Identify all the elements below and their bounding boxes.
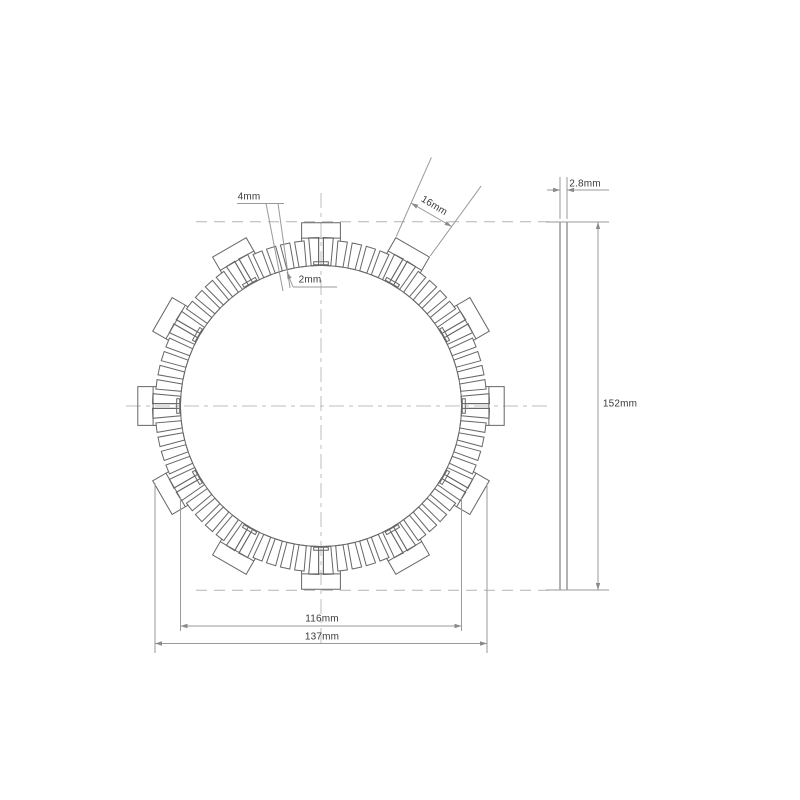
dim-label-inner-diameter: 116mm (305, 614, 339, 625)
dim-label-groove-width: 2mm (299, 275, 322, 286)
dim-label-outer-diameter: 137mm (305, 632, 339, 643)
dim-tab-outer-diameter (546, 222, 609, 590)
dim-label-thickness: 2.8mm (569, 179, 601, 190)
side-view (560, 222, 567, 590)
technical-drawing (0, 0, 800, 800)
dim-label-pad-width: 4mm (238, 192, 261, 203)
drawing-canvas: 4mm 2mm 16mm 2.8mm 152mm 116mm 137mm (0, 0, 800, 800)
dim-outer-diameter (155, 483, 487, 653)
dim-label-tab-outer-diameter: 152mm (603, 399, 637, 410)
